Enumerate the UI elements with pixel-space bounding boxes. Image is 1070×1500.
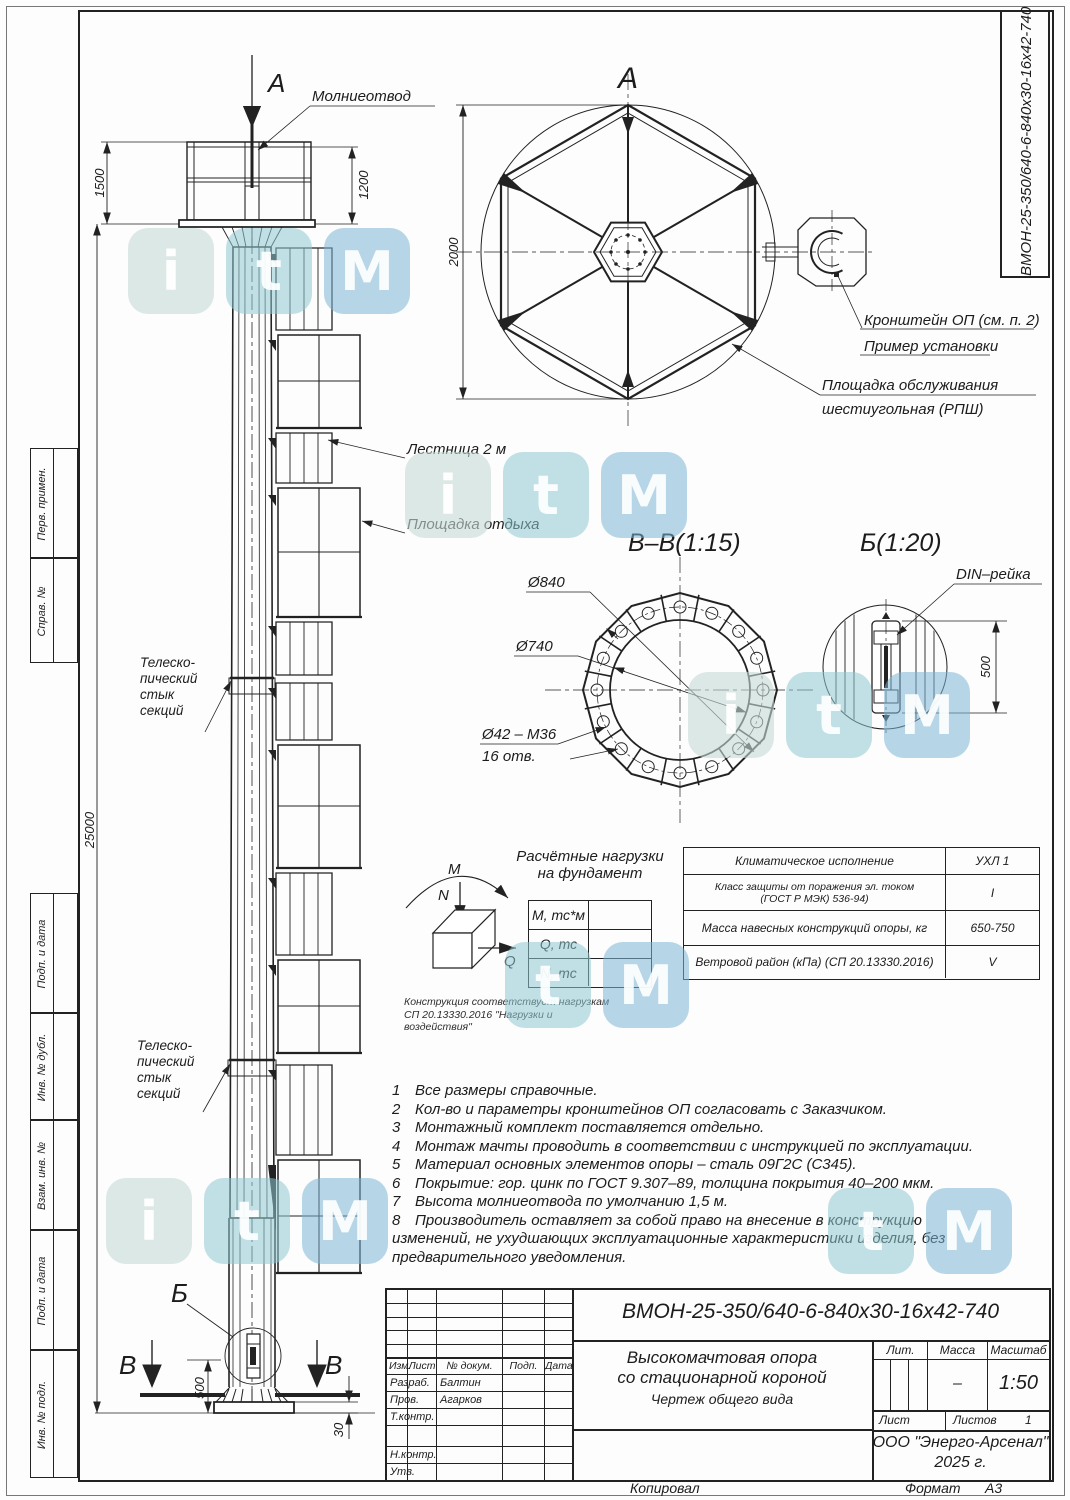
- stamp-divider: [53, 894, 54, 1012]
- climate-row2-label: Класс защиты от поражения эл. током (ГОС…: [684, 875, 946, 911]
- loads-row-q-value: [589, 930, 651, 959]
- stamp-divider: [53, 1014, 54, 1119]
- stamp-divider: [53, 1121, 54, 1229]
- scale-label: Масштаб: [988, 1343, 1049, 1357]
- loads-row-n-label: N, тс: [529, 959, 589, 986]
- note-item: 5Материал основных элементов опоры – ста…: [392, 1156, 992, 1175]
- format-value: А3: [985, 1480, 1002, 1496]
- stamp-vzam-inv: Взам. инв. №: [30, 1120, 78, 1230]
- note-number: 2: [392, 1101, 406, 1120]
- stamp-divider: [53, 449, 54, 557]
- stamp-inv-dubl: Инв. № дубл.: [30, 1013, 78, 1120]
- note-item: 2Кол-во и параметры кронштейнов ОП согла…: [392, 1101, 992, 1120]
- col-list: Лист: [408, 1360, 436, 1372]
- climate-row1-value: УХЛ 1: [946, 848, 1039, 875]
- stamp-label: Взам. инв. №: [31, 1121, 53, 1231]
- note-text: Монтажный комплект поставляется отдельно…: [415, 1119, 764, 1136]
- row-prov-label: Пров.: [390, 1394, 419, 1406]
- loads-note: Конструкция соответствует нагрузкам СП 2…: [404, 996, 619, 1034]
- loads-row-n-value: [589, 959, 651, 986]
- note-item: 7Высота молниеотвода по умолчанию 1,5 м.: [392, 1193, 992, 1212]
- title-line2: со стационарной короной: [572, 1368, 872, 1388]
- loads-note-line1: Конструкция соответствует нагрузкам: [404, 996, 619, 1009]
- note-text: Производитель оставляет за собой право н…: [392, 1212, 945, 1266]
- notes-block: 1Все размеры справочные. 2Кол-во и парам…: [392, 1082, 992, 1267]
- loads-title-line2: на фундамент: [505, 865, 675, 882]
- loads-table: М, тс*м Q, тс N, тс: [528, 900, 652, 988]
- format-label: Формат: [905, 1480, 961, 1496]
- stamp-perv-primen: Перв. примен.: [30, 448, 78, 558]
- climate-row2-value: I: [946, 875, 1039, 911]
- climate-row1-label: Климатическое исполнение: [684, 848, 946, 875]
- climate-row4-value: V: [946, 946, 1039, 978]
- col-podp: Подп.: [503, 1360, 544, 1372]
- doc-number-vertical: ВМОН-25-350/640-6-840х30-16х42-740: [1010, 12, 1044, 276]
- doc-number-margin-box: ВМОН-25-350/640-6-840х30-16х42-740: [1000, 10, 1050, 278]
- loads-note-line2: СП 20.13330.2016 "Нагрузки и воздействия…: [404, 1009, 619, 1034]
- note-item: 3Монтажный комплект поставляется отдельн…: [392, 1119, 992, 1138]
- sheets-label: Листов: [953, 1413, 997, 1427]
- loads-row-m-value: [589, 901, 651, 930]
- note-text: Монтаж мачты проводить в соответствии с …: [415, 1138, 973, 1155]
- mass-value: –: [928, 1375, 987, 1393]
- stamp-label: Подп. и дата: [31, 1231, 53, 1351]
- col-docum: № докум.: [437, 1360, 502, 1372]
- drawing-sheet: Перв. примен. Справ. № Подп. и дата Инв.…: [0, 0, 1070, 1500]
- note-item: 4Монтаж мачты проводить в соответствии с…: [392, 1138, 992, 1157]
- stamp-label: Подп. и дата: [31, 894, 53, 1014]
- climate-row4-label: Ветровой район (кПа) (СП 20.13330.2016): [684, 946, 946, 978]
- loads-row-q-label: Q, тс: [529, 930, 589, 959]
- stamp-divider: [53, 1351, 54, 1477]
- stamp-label: Инв. № подл.: [31, 1351, 53, 1479]
- loads-title-line1: Расчётные нагрузки: [505, 848, 675, 865]
- telescopic-joint-label-1: Телеско- пический стык секций: [140, 655, 215, 719]
- stamp-label: Справ. №: [31, 559, 53, 664]
- loads-title: Расчётные нагрузки на фундамент: [505, 848, 675, 882]
- note-number: 5: [392, 1156, 406, 1175]
- org-name: ООО "Энерго-Арсенал": [872, 1434, 1049, 1452]
- org-year: 2025 г.: [872, 1454, 1049, 1472]
- row-razrab-name: Балтин: [440, 1377, 481, 1389]
- note-text: Все размеры справочные.: [415, 1082, 598, 1099]
- note-item: 1Все размеры справочные.: [392, 1082, 992, 1101]
- note-text: Материал основных элементов опоры – стал…: [415, 1156, 857, 1173]
- stamp-divider: [53, 1231, 54, 1349]
- row-prov-name: Агарков: [440, 1394, 482, 1406]
- note-item: 8Производитель оставляет за собой право …: [392, 1212, 992, 1268]
- row-razrab-label: Разраб.: [390, 1377, 430, 1389]
- note-text: Кол-во и параметры кронштейнов ОП соглас…: [415, 1101, 887, 1118]
- mass-label: Масса: [928, 1343, 987, 1357]
- stamp-label: Инв. № дубл.: [31, 1014, 53, 1121]
- stamp-label: Перв. примен.: [31, 449, 53, 559]
- note-number: 4: [392, 1138, 406, 1157]
- row-utv-label: Утв.: [390, 1466, 415, 1478]
- kopiroval-label: Копировал: [630, 1480, 700, 1496]
- row-nkontr-label: Н.контр.: [390, 1449, 437, 1461]
- note-text: Покрытие: гор. цинк по ГОСТ 9.307–89, то…: [415, 1175, 934, 1192]
- col-izm: Изм.: [389, 1360, 407, 1372]
- telescopic-joint-label-2: Телеско- пический стык секций: [137, 1038, 212, 1102]
- stamp-divider: [53, 559, 54, 662]
- lit-label: Лит.: [874, 1343, 927, 1357]
- climate-table: Климатическое исполнение УХЛ 1 Класс защ…: [683, 847, 1040, 980]
- sheet-label: Лист: [879, 1413, 910, 1427]
- col-data: Дата: [545, 1360, 572, 1372]
- title-line1: Высокомачтовая опора: [572, 1348, 872, 1368]
- note-number: 8: [392, 1212, 406, 1231]
- note-item: 6Покрытие: гор. цинк по ГОСТ 9.307–89, т…: [392, 1175, 992, 1194]
- climate-row3-label: Масса навесных конструкций опоры, кг: [684, 911, 946, 946]
- climate-row3-value: 650-750: [946, 911, 1039, 946]
- title-block: ВМОН-25-350/640-6-840х30-16х42-740 Изм. …: [385, 1288, 1051, 1482]
- note-number: 3: [392, 1119, 406, 1138]
- note-number: 7: [392, 1193, 406, 1212]
- note-number: 6: [392, 1175, 406, 1194]
- stamp-sprav-no: Справ. №: [30, 558, 78, 663]
- stamp-podp-data-1: Подп. и дата: [30, 893, 78, 1013]
- stamp-podp-data-2: Подп. и дата: [30, 1230, 78, 1350]
- stamp-inv-podl: Инв. № подл.: [30, 1350, 78, 1478]
- note-number: 1: [392, 1082, 406, 1101]
- loads-row-m-label: М, тс*м: [529, 901, 589, 930]
- sheets-value: 1: [1025, 1413, 1032, 1427]
- titleblock-doc-number: ВМОН-25-350/640-6-840х30-16х42-740: [572, 1300, 1049, 1324]
- note-text: Высота молниеотвода по умолчанию 1,5 м.: [415, 1193, 728, 1210]
- title-line3: Чертеж общего вида: [572, 1391, 872, 1407]
- row-tkontr-label: Т.контр.: [390, 1411, 434, 1423]
- scale-value: 1:50: [988, 1372, 1049, 1395]
